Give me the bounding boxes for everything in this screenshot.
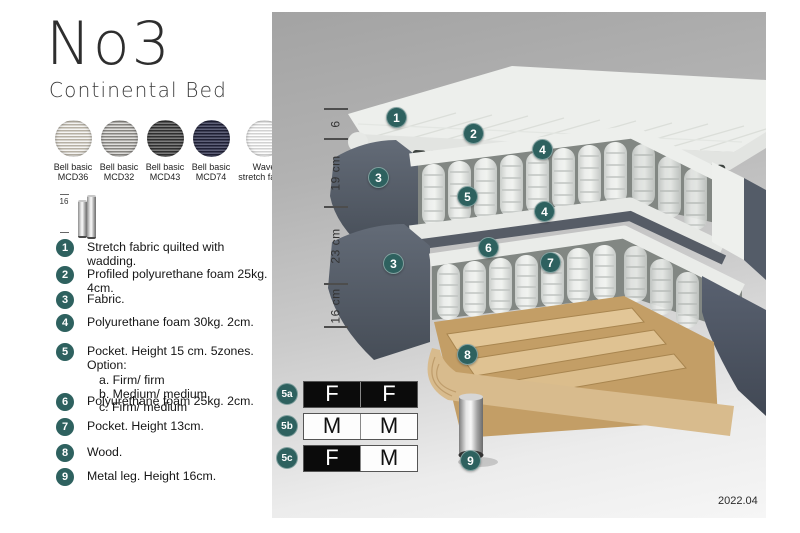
fabric-swatch: Bell basicMCD43	[144, 120, 186, 182]
firmness-row-label: 5c	[276, 447, 298, 469]
fabric-swatch-icon	[101, 120, 138, 157]
legend-number: 7	[56, 418, 74, 436]
firmness-cell: F	[361, 382, 417, 407]
legend-number: 8	[56, 444, 74, 462]
firmness-cell: M	[304, 414, 360, 439]
legend-number: 6	[56, 393, 74, 411]
callout-7: 7	[540, 252, 561, 273]
firmness-cell: F	[304, 382, 360, 407]
legend-item-3: 3 Fabric.	[56, 291, 276, 309]
firmness-row-5b: 5b M M	[276, 412, 418, 440]
page-title: No3	[46, 14, 172, 74]
callout-4: 4	[534, 201, 555, 222]
version-date: 2022.04	[718, 495, 758, 507]
legend-number: 9	[56, 468, 74, 486]
legend-item-6: 6 Polyurethane foam 25kg. 2cm.	[56, 393, 276, 411]
legend-item-1: 1 Stretch fabric quilted with wadding.	[56, 239, 276, 268]
bed-illustration-panel: 6 19 cm 23 cm 16 cm 1 2 4 3 5 4 6 7 3 8 …	[272, 12, 766, 518]
callout-3: 3	[383, 253, 404, 274]
leg-dimension: 16	[60, 197, 69, 206]
legend-item-8: 8 Wood.	[56, 444, 276, 462]
dimension-label: 19 cm	[329, 155, 343, 190]
legend-item-7: 7 Pocket. Height 13cm.	[56, 418, 276, 436]
callout-6: 6	[478, 237, 499, 258]
fabric-swatch: Bell basicMCD74	[190, 120, 232, 182]
page-subtitle: Continental Bed	[49, 78, 227, 102]
fabric-swatch: Bell basicMCD36	[52, 120, 94, 182]
fabric-swatch-row: Bell basicMCD36 Bell basicMCD32 Bell bas…	[52, 120, 288, 182]
fabric-swatch-icon	[147, 120, 184, 157]
callout-8: 8	[457, 344, 478, 365]
callout-9: 9	[460, 450, 481, 471]
legend-item-9: 9 Metal leg. Height 16cm.	[56, 468, 276, 486]
firmness-row-5a: 5a F F	[276, 380, 418, 408]
dimension-label: 16 cm	[329, 288, 343, 323]
firmness-cell: M	[361, 414, 417, 439]
firmness-row-label: 5a	[276, 383, 298, 405]
firmness-row-5c: 5c F M	[276, 444, 418, 472]
callout-5: 5	[457, 186, 478, 207]
tick-mark	[60, 194, 69, 195]
dimension-ruler: 6 19 cm 23 cm 16 cm	[324, 108, 348, 328]
firmness-cell: M	[361, 446, 417, 471]
tick-mark	[60, 232, 69, 233]
dimension-label: 23 cm	[329, 228, 343, 263]
fabric-swatch: Bell basicMCD32	[98, 120, 140, 182]
fabric-swatch-icon	[193, 120, 230, 157]
metal-leg-icon	[76, 194, 106, 238]
callout-4: 4	[532, 139, 553, 160]
legend-item-4: 4 Polyurethane foam 30kg. 2cm.	[56, 314, 276, 332]
fabric-swatch-icon	[55, 120, 92, 157]
firmness-cell: F	[304, 446, 360, 471]
leg-height-figure: 16	[56, 194, 106, 238]
callout-2: 2	[463, 123, 484, 144]
firmness-row-label: 5b	[276, 415, 298, 437]
legend-number: 2	[56, 266, 74, 284]
dimension-label: 6	[329, 120, 343, 127]
legend-number: 5	[56, 343, 74, 361]
callout-3: 3	[368, 167, 389, 188]
legend-number: 1	[56, 239, 74, 257]
legend-number: 3	[56, 291, 74, 309]
legend-number: 4	[56, 314, 74, 332]
callout-1: 1	[386, 107, 407, 128]
